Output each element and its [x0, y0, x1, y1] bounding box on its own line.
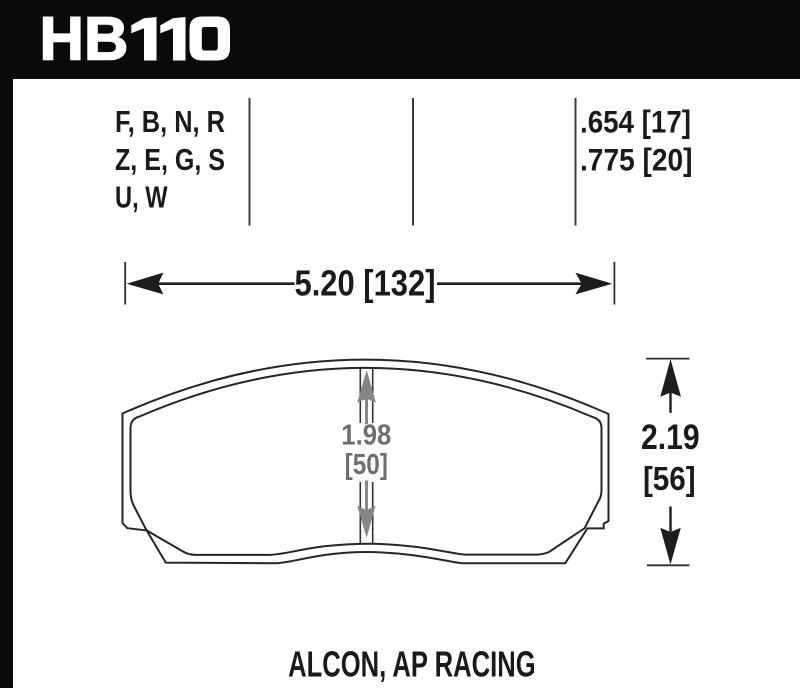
svg-text:[50]: [50]: [345, 449, 388, 481]
svg-text:HB: HB: [40, 5, 129, 74]
svg-text:U, W: U, W: [115, 179, 168, 214]
svg-text:5.20 [132]: 5.20 [132]: [295, 263, 436, 304]
svg-text:.775 [20]: .775 [20]: [580, 142, 693, 178]
svg-text:ALCON, AP RACING: ALCON, AP RACING: [288, 644, 536, 685]
svg-text:[56]: [56]: [643, 460, 696, 497]
svg-text:F, B, N, R: F, B, N, R: [115, 104, 225, 139]
svg-text:1.98: 1.98: [341, 420, 391, 452]
svg-text:Z, E, G, S: Z, E, G, S: [115, 142, 225, 177]
svg-text:.654 [17]: .654 [17]: [580, 104, 691, 140]
svg-text:2.19: 2.19: [641, 418, 700, 457]
